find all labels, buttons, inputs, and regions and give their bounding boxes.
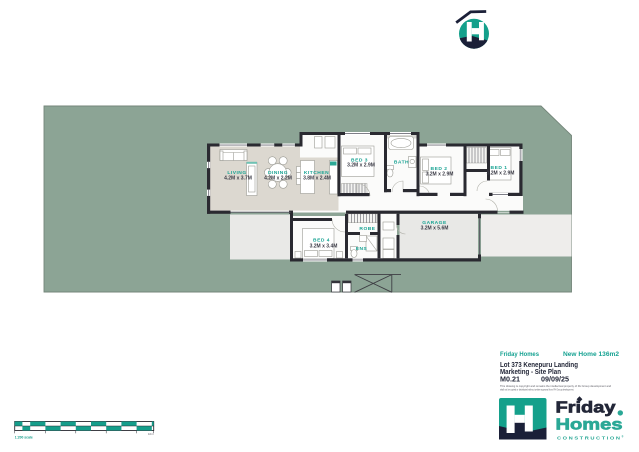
svg-text:Friday: Friday [556,399,616,416]
svg-text:3.2M x 2.9M: 3.2M x 2.9M [347,163,375,169]
svg-text:ENS: ENS [356,246,368,252]
svg-text:4.2M x 2.2M: 4.2M x 2.2M [264,176,292,182]
svg-text:Homes: Homes [556,416,623,433]
svg-text:M0.21: M0.21 [500,374,520,383]
svg-text:BATH: BATH [394,159,409,165]
svg-text:3.2M x 3.4M: 3.2M x 3.4M [310,243,338,249]
svg-text:®: ® [622,435,624,439]
svg-text:Friday Homes: Friday Homes [500,352,540,358]
svg-text:09/09/25: 09/09/25 [541,374,569,383]
svg-text:3.2M x 5.6M: 3.2M x 5.6M [421,226,449,232]
svg-text:10m: 10m [148,432,154,436]
svg-text:New Home 136m2: New Home 136m2 [563,352,620,358]
svg-text:3.8M x 2.4M: 3.8M x 2.4M [303,176,331,182]
svg-text:1:200 scale: 1:200 scale [15,436,33,440]
svg-text:3.2M x 2.9M: 3.2M x 2.9M [487,170,515,176]
svg-text:C O N S T R U C T I O N: C O N S T R U C T I O N [557,435,621,440]
svg-text:4.2M x 3.7M: 4.2M x 3.7M [224,176,252,182]
svg-text:This drawing is copyright and: This drawing is copyright and remains th… [500,384,612,388]
svg-text:ROBE: ROBE [359,226,375,232]
svg-text:3.2M x 2.9M: 3.2M x 2.9M [426,171,454,177]
svg-text:shall not be copied or distrib: shall not be copied or distributed witho… [500,388,574,392]
